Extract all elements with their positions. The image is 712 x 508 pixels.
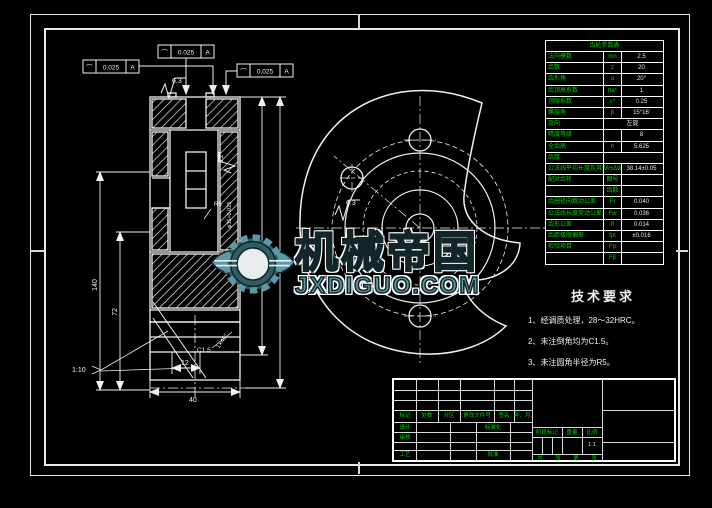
- geometric-tolerance-frame: ⌒ 0.025 A ⌒ 0.025 A ⌒ 0.025 A: [83, 45, 293, 94]
- gear-table-cell: 20: [621, 63, 661, 73]
- dim-chamfer-c: C1.5: [197, 347, 211, 354]
- gear-table-cell: 全齿高: [546, 142, 603, 152]
- technical-requirement-item: 1、经调质处理，28～32HRC。: [528, 315, 678, 326]
- gear-table-cell: 检验项目: [546, 242, 603, 252]
- revision-header-cell: 分区: [438, 411, 460, 421]
- gear-table-cell: 精度等级: [546, 130, 603, 140]
- dim-72: 72: [112, 308, 119, 316]
- gear-table-cell: 法向模数: [546, 52, 603, 62]
- gear-table-row: 公法线平均长度及其偏差W±ΔW38.14±0.05: [546, 163, 663, 174]
- gear-table-cell: 配对齿轮: [546, 175, 603, 185]
- gear-table-cell: z: [603, 63, 621, 73]
- roughness-value: 3.2: [219, 154, 225, 163]
- gear-table-row: 全齿高h5.625: [546, 141, 663, 152]
- gear-table-cell: 左旋: [603, 119, 661, 129]
- gear-table-title: 齿轮参数表: [546, 41, 663, 52]
- revision-header-cell: 处数: [416, 411, 438, 421]
- gear-table-cell: [621, 186, 661, 196]
- dim-140: 140: [92, 279, 99, 291]
- side-view: [296, 90, 548, 366]
- cad-drawing-sheet: 140 72 12 40 φ35+0.025 R5 C1.5 1×45° 1:1…: [0, 0, 712, 508]
- dim-12: 12: [181, 360, 189, 367]
- gear-table-cell: α: [603, 74, 621, 84]
- gear-table-row: Fβ: [546, 252, 663, 263]
- gear-table-cell: [621, 175, 661, 185]
- gear-table-cell: Fr: [603, 197, 621, 207]
- dim-bore: φ35+0.025: [227, 202, 233, 229]
- gear-table-cell: mn: [603, 52, 621, 62]
- revision-header-cell: 签名: [494, 411, 514, 421]
- dim-taper: 1:10: [72, 367, 86, 374]
- standardization-label: 标准化: [476, 423, 510, 433]
- revision-header-cell: 更改文件号: [460, 411, 494, 421]
- gear-table-cell: 齿数: [546, 63, 603, 73]
- sheet-word: 张: [588, 454, 600, 464]
- gear-table-cell: 螺旋角: [546, 108, 603, 118]
- tolerance-symbol-icon: ⌒: [161, 49, 168, 57]
- gear-table-cell: 齿距极限偏差: [546, 231, 603, 241]
- gear-table-row: 旋向左旋: [546, 118, 663, 129]
- technical-requirement-item: 3、未注圆角半径为R5。: [528, 357, 678, 368]
- gear-table-cell: c*: [603, 97, 621, 107]
- gear-table-row: 齿数: [546, 185, 663, 196]
- tolerance-value: 0.025: [103, 65, 120, 72]
- gear-table-row: 齿形公差ff0.014: [546, 219, 663, 230]
- gear-table-cell: 1: [621, 86, 661, 96]
- tolerance-datum: A: [130, 65, 135, 72]
- revision-header-cell: 标记: [394, 411, 416, 421]
- gear-table-row: 螺旋角β15°16′: [546, 107, 663, 118]
- gear-table-cell: h: [603, 142, 621, 152]
- scale-value: 1:1: [582, 440, 602, 450]
- gear-table-row: 齿厚: [546, 152, 663, 163]
- gear-table-cell: 齿形角: [546, 74, 603, 84]
- gear-table-row: 检验项目Fp: [546, 241, 663, 252]
- gear-table-cell: 0.014: [621, 220, 661, 230]
- gear-table-cell: 旋向: [546, 119, 603, 129]
- gear-table-cell: Fw: [603, 209, 621, 219]
- gear-table-cell: 齿圈径向跳动公差: [546, 197, 603, 207]
- gear-table-cell: 齿顶高系数: [546, 86, 603, 96]
- process-label: 工艺: [394, 450, 416, 460]
- tolerance-value: 0.025: [178, 50, 195, 57]
- gear-table-cell: ±0.016: [621, 231, 661, 241]
- technical-requirements-title: 技术要求: [528, 286, 678, 305]
- surface-roughness-marks: 6.3 6.3 3.2: [161, 78, 360, 220]
- roughness-value: 6.3: [346, 200, 356, 207]
- gear-table-cell: [546, 253, 603, 263]
- gear-table-cell: [621, 253, 661, 263]
- gear-table-cell: [621, 242, 661, 252]
- gear-table-cell: 齿厚: [546, 153, 603, 163]
- gear-table-row: 齿形角α20°: [546, 73, 663, 84]
- gear-table-cell: 齿形公差: [546, 220, 603, 230]
- gear-table-cell: W±ΔW: [603, 164, 621, 174]
- gear-table-cell: 5.625: [621, 142, 661, 152]
- gear-table-cell: 齿数: [603, 186, 621, 196]
- gear-table-cell: Fβ: [603, 253, 621, 263]
- gear-table-cell: ff: [603, 220, 621, 230]
- gear-table-row: 配对齿轮图号: [546, 174, 663, 185]
- gear-table-row: 齿数z20: [546, 62, 663, 73]
- gear-table-row: 法向模数mn2.5: [546, 52, 663, 62]
- gear-table-cell: 0.040: [621, 197, 661, 207]
- scale-label: 比例: [582, 428, 602, 438]
- gear-table-row: 顶隙系数c*0.25: [546, 96, 663, 107]
- sheet-total-label: 共: [534, 454, 546, 464]
- gear-table-row: 公法线长度变动公差Fw0.036: [546, 208, 663, 219]
- gear-table-cell: 图号: [603, 175, 621, 185]
- gear-parameter-table: 齿轮参数表 法向模数mn2.5齿数z20齿形角α20°齿顶高系数ha*1顶隙系数…: [545, 40, 664, 265]
- gear-table-cell: fpt: [603, 231, 621, 241]
- design-label: 设计: [394, 423, 416, 433]
- sheet-word: 张: [552, 454, 564, 464]
- gear-table-rows: 法向模数mn2.5齿数z20齿形角α20°齿顶高系数ha*1顶隙系数c*0.25…: [546, 52, 663, 264]
- tolerance-datum: A: [205, 50, 210, 57]
- gear-table-cell: 公法线长度变动公差: [546, 209, 603, 219]
- gear-table-row: 齿圈径向跳动公差Fr0.040: [546, 196, 663, 207]
- gear-table-cell: 2.5: [621, 52, 661, 62]
- gear-table-cell: 顶隙系数: [546, 97, 603, 107]
- gear-table-cell: 0.036: [621, 209, 661, 219]
- dim-40: 40: [189, 397, 197, 404]
- gear-table-cell: [603, 130, 621, 140]
- gear-table-cell: Fp: [603, 242, 621, 252]
- gear-table-cell: 38.14±0.05: [621, 164, 661, 174]
- title-block: 标记处数分区更改文件号签名年、月、日 设计 标准化 审核 工艺 批准 阶段标记 …: [392, 378, 676, 462]
- gear-table-cell: [546, 186, 603, 196]
- dimension-lines: [96, 97, 286, 398]
- tolerance-symbol-icon: ⌒: [240, 68, 247, 76]
- weight-label: 重量: [562, 428, 582, 438]
- approve-label: 批准: [476, 450, 510, 460]
- gear-table-row: 齿距极限偏差fpt±0.016: [546, 230, 663, 241]
- sheet-page-label: 第: [570, 454, 582, 464]
- tolerance-symbol-icon: ⌒: [86, 64, 93, 72]
- dim-fillet: R5: [214, 202, 222, 208]
- gear-table-cell: ha*: [603, 86, 621, 96]
- gear-table-cell: β: [603, 108, 621, 118]
- stage-mark-label: 阶段标记: [532, 428, 562, 438]
- check-label: 审核: [394, 433, 416, 443]
- tolerance-datum: A: [284, 69, 289, 76]
- gear-table-cell: 20°: [621, 74, 661, 84]
- gear-table-row: 精度等级8: [546, 129, 663, 140]
- roughness-value: 6.3: [172, 78, 182, 85]
- technical-requirement-item: 2、未注倒角均为C1.5。: [528, 336, 678, 347]
- gear-table-cell: 公法线平均长度及其偏差: [546, 164, 603, 174]
- gear-table-cell: 8: [621, 130, 661, 140]
- gear-table-cell: 15°16′: [621, 108, 661, 118]
- revision-header-cell: 年、月、日: [514, 411, 532, 421]
- technical-requirements: 技术要求 1、经调质处理，28～32HRC。 2、未注倒角均为C1.5。 3、未…: [528, 286, 678, 368]
- gear-table-cell: [603, 153, 661, 163]
- gear-table-cell: 0.25: [621, 97, 661, 107]
- gear-table-row: 齿顶高系数ha*1: [546, 85, 663, 96]
- tolerance-value: 0.025: [257, 69, 274, 76]
- centerlines: [296, 96, 548, 366]
- dim-hole-note: 20: [348, 284, 354, 291]
